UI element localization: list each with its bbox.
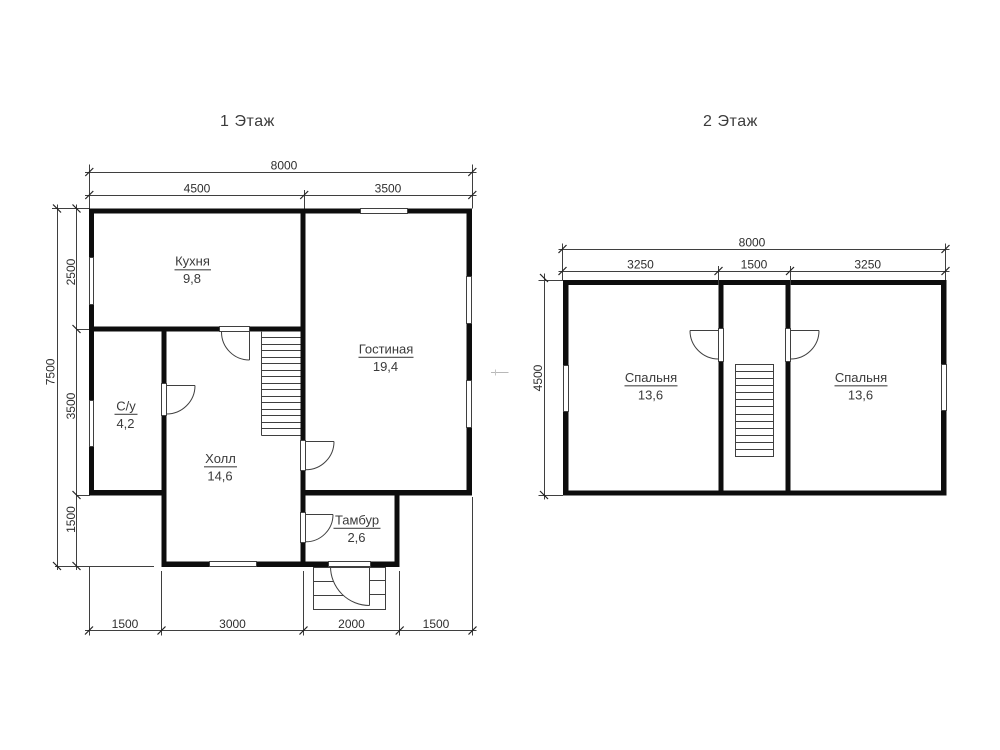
svg-text:1500: 1500 [423, 617, 450, 631]
svg-text:1500: 1500 [112, 617, 139, 631]
svg-text:1500: 1500 [741, 257, 768, 271]
svg-text:2500: 2500 [64, 258, 78, 285]
svg-text:Кухня: Кухня [175, 254, 210, 269]
svg-text:3500: 3500 [64, 392, 78, 419]
svg-text:2 Этаж: 2 Этаж [703, 113, 758, 130]
svg-text:4500: 4500 [531, 364, 545, 391]
svg-text:Спальня: Спальня [835, 370, 887, 385]
svg-text:С/у: С/у [116, 399, 136, 414]
svg-text:2,6: 2,6 [347, 530, 365, 545]
svg-text:1 Этаж: 1 Этаж [220, 113, 275, 130]
svg-text:1500: 1500 [64, 506, 78, 533]
svg-text:3500: 3500 [375, 181, 402, 195]
svg-text:Спальня: Спальня [625, 370, 677, 385]
svg-text:13,6: 13,6 [638, 388, 663, 403]
svg-text:14,6: 14,6 [207, 469, 232, 484]
svg-text:3000: 3000 [219, 617, 246, 631]
svg-text:19,4: 19,4 [373, 359, 398, 374]
svg-text:8000: 8000 [739, 235, 766, 249]
svg-text:4500: 4500 [184, 181, 211, 195]
svg-text:3250: 3250 [627, 257, 654, 271]
svg-text:Гостиная: Гостиная [359, 342, 414, 357]
svg-text:9,8: 9,8 [183, 271, 201, 286]
svg-text:8000: 8000 [271, 159, 298, 173]
svg-text:4,2: 4,2 [116, 416, 134, 431]
svg-text:2000: 2000 [338, 617, 365, 631]
svg-text:7500: 7500 [44, 358, 58, 385]
svg-text:Тамбур: Тамбур [335, 513, 379, 528]
svg-text:Холл: Холл [205, 451, 236, 466]
svg-text:13,6: 13,6 [848, 388, 873, 403]
svg-text:3250: 3250 [854, 257, 881, 271]
